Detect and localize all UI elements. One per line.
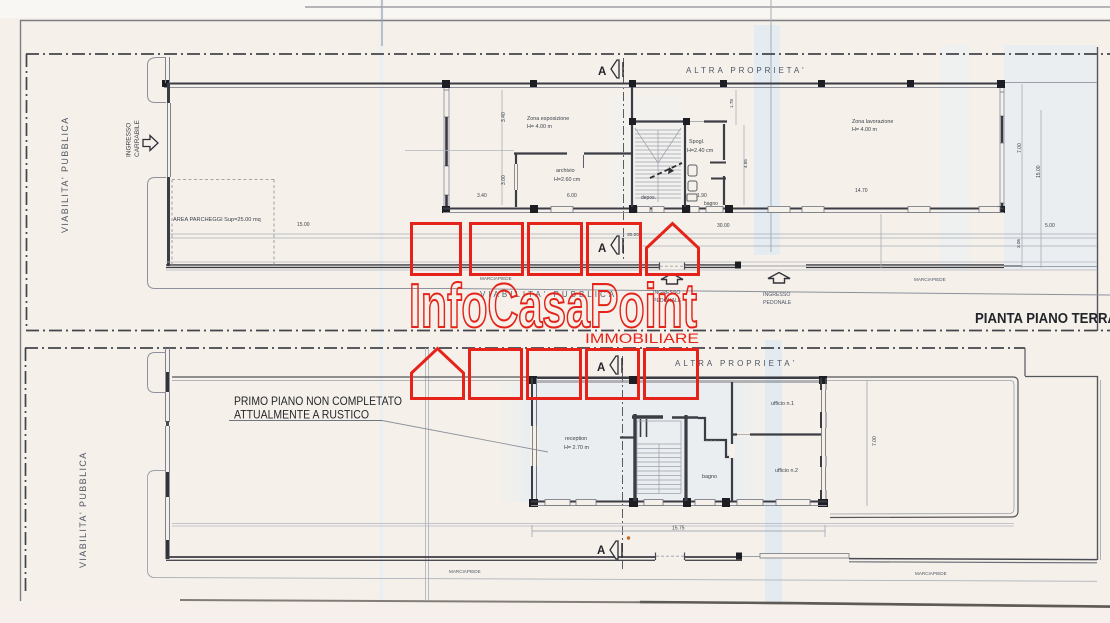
svg-text:3.40: 3.40	[501, 112, 507, 122]
svg-text:A: A	[598, 66, 606, 78]
svg-text:bagno: bagno	[702, 474, 717, 480]
svg-text:MARCIAPIEDE: MARCIAPIEDE	[449, 569, 481, 574]
svg-text:depos.: depos.	[641, 195, 656, 201]
svg-text:PRIMO PIANO NON COMPLETATO: PRIMO PIANO NON COMPLETATO	[234, 394, 402, 408]
svg-text:ALTRA PROPRIETA': ALTRA PROPRIETA'	[675, 359, 797, 368]
svg-text:H= 2.70 m: H= 2.70 m	[564, 445, 590, 451]
svg-text:1.90: 1.90	[697, 193, 707, 199]
svg-text:4.85: 4.85	[743, 159, 748, 168]
svg-text:PIANTA PIANO TERRA: PIANTA PIANO TERRA	[975, 311, 1110, 327]
svg-text:3.06: 3.06	[1016, 239, 1021, 248]
svg-text:ufficio n.1: ufficio n.1	[771, 401, 794, 407]
svg-text:30.00: 30.00	[717, 223, 730, 229]
svg-text:INGRESSO: INGRESSO	[126, 123, 133, 157]
svg-text:A: A	[597, 545, 605, 557]
svg-text:A: A	[597, 362, 605, 374]
svg-text:bagno: bagno	[704, 201, 718, 207]
svg-text:Zona lavorazione: Zona lavorazione	[852, 119, 893, 125]
svg-text:INGRESSO: INGRESSO	[763, 292, 790, 298]
svg-text:1.78: 1.78	[729, 99, 734, 108]
svg-text:7.00: 7.00	[1017, 143, 1023, 153]
svg-text:IMMOBILIARE: IMMOBILIARE	[585, 331, 699, 346]
svg-text:MARCIAPIEDE: MARCIAPIEDE	[915, 571, 947, 576]
svg-text:7.00: 7.00	[872, 436, 878, 446]
svg-text:30.00: 30.00	[627, 232, 639, 238]
svg-text:3.00: 3.00	[501, 175, 507, 185]
svg-text:MARCIAPIEDE: MARCIAPIEDE	[914, 277, 946, 282]
svg-text:VIABILITA' PUBBLICA: VIABILITA' PUBBLICA	[60, 116, 70, 233]
svg-text:15.75: 15.75	[672, 526, 685, 532]
svg-text:14.70: 14.70	[855, 188, 868, 194]
svg-text:H=2.40 cm: H=2.40 cm	[687, 148, 714, 154]
svg-text:ALTRA PROPRIETA': ALTRA PROPRIETA'	[686, 66, 807, 75]
svg-text:ufficio n.2: ufficio n.2	[775, 468, 798, 474]
svg-text:5.00: 5.00	[1045, 223, 1055, 229]
svg-text:3.40: 3.40	[477, 193, 487, 199]
svg-text:H=2.60 cm: H=2.60 cm	[554, 177, 581, 183]
svg-text:AREA PARCHEGGI Sup=25.00 mq: AREA PARCHEGGI Sup=25.00 mq	[173, 217, 261, 223]
svg-text:ATTUALMENTE A RUSTICO: ATTUALMENTE A RUSTICO	[234, 408, 369, 422]
svg-text:CARRABILE: CARRABILE	[134, 119, 141, 157]
svg-text:A: A	[598, 243, 606, 255]
svg-text:15.00: 15.00	[1036, 165, 1042, 178]
svg-text:reception: reception	[565, 436, 587, 442]
svg-text:15.00: 15.00	[297, 222, 310, 228]
svg-text:archivio: archivio	[556, 168, 575, 174]
svg-text:PEDONALE: PEDONALE	[763, 300, 792, 306]
svg-text:6.00: 6.00	[567, 193, 577, 199]
svg-text:Zona esposizione: Zona esposizione	[527, 116, 569, 122]
svg-text:H= 4.00 m: H= 4.00 m	[852, 127, 878, 133]
svg-text:Spogl.: Spogl.	[689, 139, 704, 145]
svg-text:H= 4.00 m: H= 4.00 m	[527, 124, 553, 130]
svg-text:VIABILITA' PUBBLICA: VIABILITA' PUBBLICA	[78, 451, 88, 568]
